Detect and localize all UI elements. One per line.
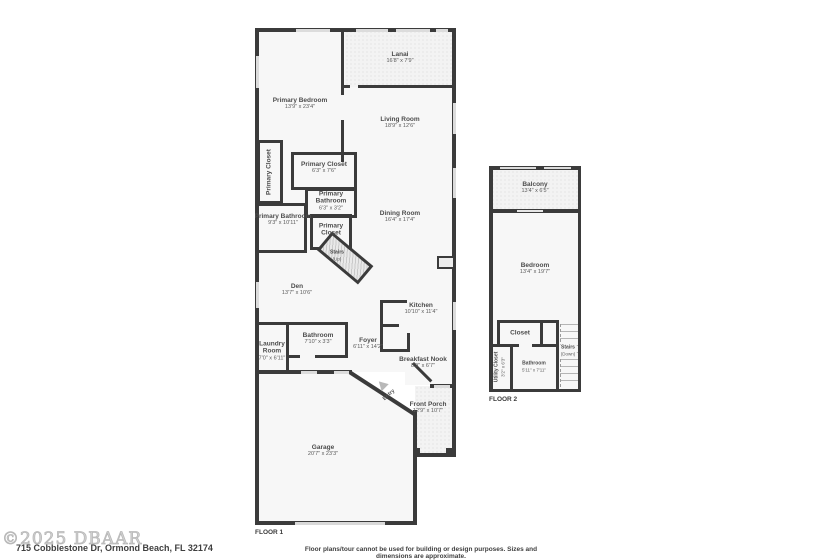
room-label-front-porch: Front Porch 12'9" x 10'7": [410, 401, 447, 415]
room-label-bedroom2: Bedroom 13'4" x 19'7": [520, 262, 550, 276]
porch-post-left: [413, 448, 420, 455]
room-label-primary-closet-left: Primary Closet: [265, 149, 272, 195]
window-kitchen-right: [453, 302, 456, 330]
room-label-primary-closet-small: Primary Closet: [316, 223, 346, 238]
room-label-primary-bathroom: Primary Bathroom 9'3" x 10'11": [255, 213, 312, 227]
wall-primary-bath-right: [304, 203, 307, 253]
f2-wall-stairs-left: [556, 320, 560, 390]
room-label-kitchen: Kitchen 10'10" x 11'4": [405, 302, 438, 316]
room-label-dining-room: Dining Room 16'4" x 17'4": [380, 210, 420, 224]
wall-lanai-bottom-stub: [341, 85, 350, 88]
door-garage-1: [301, 371, 317, 374]
door-garage-2: [334, 371, 349, 374]
floor2-tag: FLOOR 2: [489, 396, 517, 403]
room-label-living-room: Living Room 18'9" x 12'6": [380, 116, 419, 130]
room-label-laundry-room: Laundry Room 7'0" x 6'11": [256, 340, 288, 361]
room-label-stairs-down: Stairs (Down): [560, 345, 577, 358]
kitchen-counter-top: [380, 300, 407, 303]
window-living-right-2: [453, 168, 456, 198]
room-label-breakfast-nook: Breakfast Nook 8'9" x 6'7": [399, 356, 447, 370]
window-den-left: [256, 282, 259, 308]
room-label-garage: Garage 20'7" x 23'3": [308, 444, 338, 458]
f2-wall-left: [489, 166, 493, 392]
f2-door-bathroom: [519, 344, 532, 347]
wall-primary-bath-top: [257, 203, 307, 206]
property-address: 715 Cobblestone Dr, Ormond Beach, FL 321…: [16, 543, 213, 553]
door-bathroom1: [300, 355, 315, 358]
room-label-primary-bedroom: Primary Bedroom 13'9" x 23'4": [273, 97, 328, 111]
wall-lanai-bottom: [358, 85, 452, 88]
window-lanai-top-1: [356, 29, 388, 32]
window-bedroom-top: [296, 29, 330, 32]
wall-left: [255, 28, 259, 525]
room-label-bathroom1: Bathroom 7'10" x 3'3": [303, 332, 334, 346]
front-porch-area: [415, 386, 453, 453]
room-label-utility-closet: Utility Closet 3'2" x 6'3": [495, 352, 506, 383]
window-living-right-1: [453, 103, 456, 134]
kitchen-counter-bottom: [380, 349, 410, 352]
floor1-tag: FLOOR 1: [255, 529, 283, 536]
f2-wall-stairs-top-stub: [541, 320, 559, 323]
room-label-lanai: Lanai 16'8" x 7'9": [386, 51, 413, 65]
f2-wall-right: [578, 166, 582, 392]
window-lanai-top-2: [396, 29, 430, 32]
room-label-stairs-up: Stairs (Up): [330, 251, 344, 262]
f2-balcony-door: [517, 210, 543, 213]
room-label-foyer: Foyer 6'11" x 14'2": [353, 337, 383, 351]
room-label-primary-closet-center: Primary Closet 6'3" x 7'6": [301, 161, 347, 175]
kitchen-counter-return: [407, 333, 410, 352]
wall-den-bottom-left: [255, 322, 290, 325]
wall-primary-bath-bottom: [257, 250, 307, 253]
f2-wall-utility-right: [510, 345, 513, 390]
room-label-den: Den 13'7" x 10'6": [282, 283, 312, 297]
room-label-closet2: Closet: [510, 329, 530, 336]
wall-garage-right: [413, 410, 417, 525]
porch-post-right: [446, 448, 453, 455]
window-lanai-top-3: [436, 29, 448, 32]
window-marker-dining: [437, 256, 455, 269]
f2-wall-bottom: [489, 389, 581, 393]
kitchen-counter-mid: [380, 324, 399, 327]
f2-window-balcony-1: [500, 167, 536, 170]
room-label-balcony: Balcony 13'4" x 6'5": [521, 181, 548, 195]
window-bedroom-left: [256, 56, 259, 88]
floorplan-page: Entry Primary Bedroom 13'9" x 23'4" Lana…: [0, 0, 840, 560]
f2-window-balcony-2: [544, 167, 571, 170]
wall-right: [452, 28, 456, 457]
disclaimer-text: Floor plans/tour cannot be used for buil…: [290, 546, 552, 560]
garage-door-opening: [295, 522, 385, 525]
window-nook-bottom: [434, 385, 450, 388]
room-label-bathroom2: Bathroom 5'11" x 7'11": [522, 362, 546, 373]
room-label-primary-bathroom-small: Primary Bathroom 6'3" x 3'2": [312, 190, 350, 211]
